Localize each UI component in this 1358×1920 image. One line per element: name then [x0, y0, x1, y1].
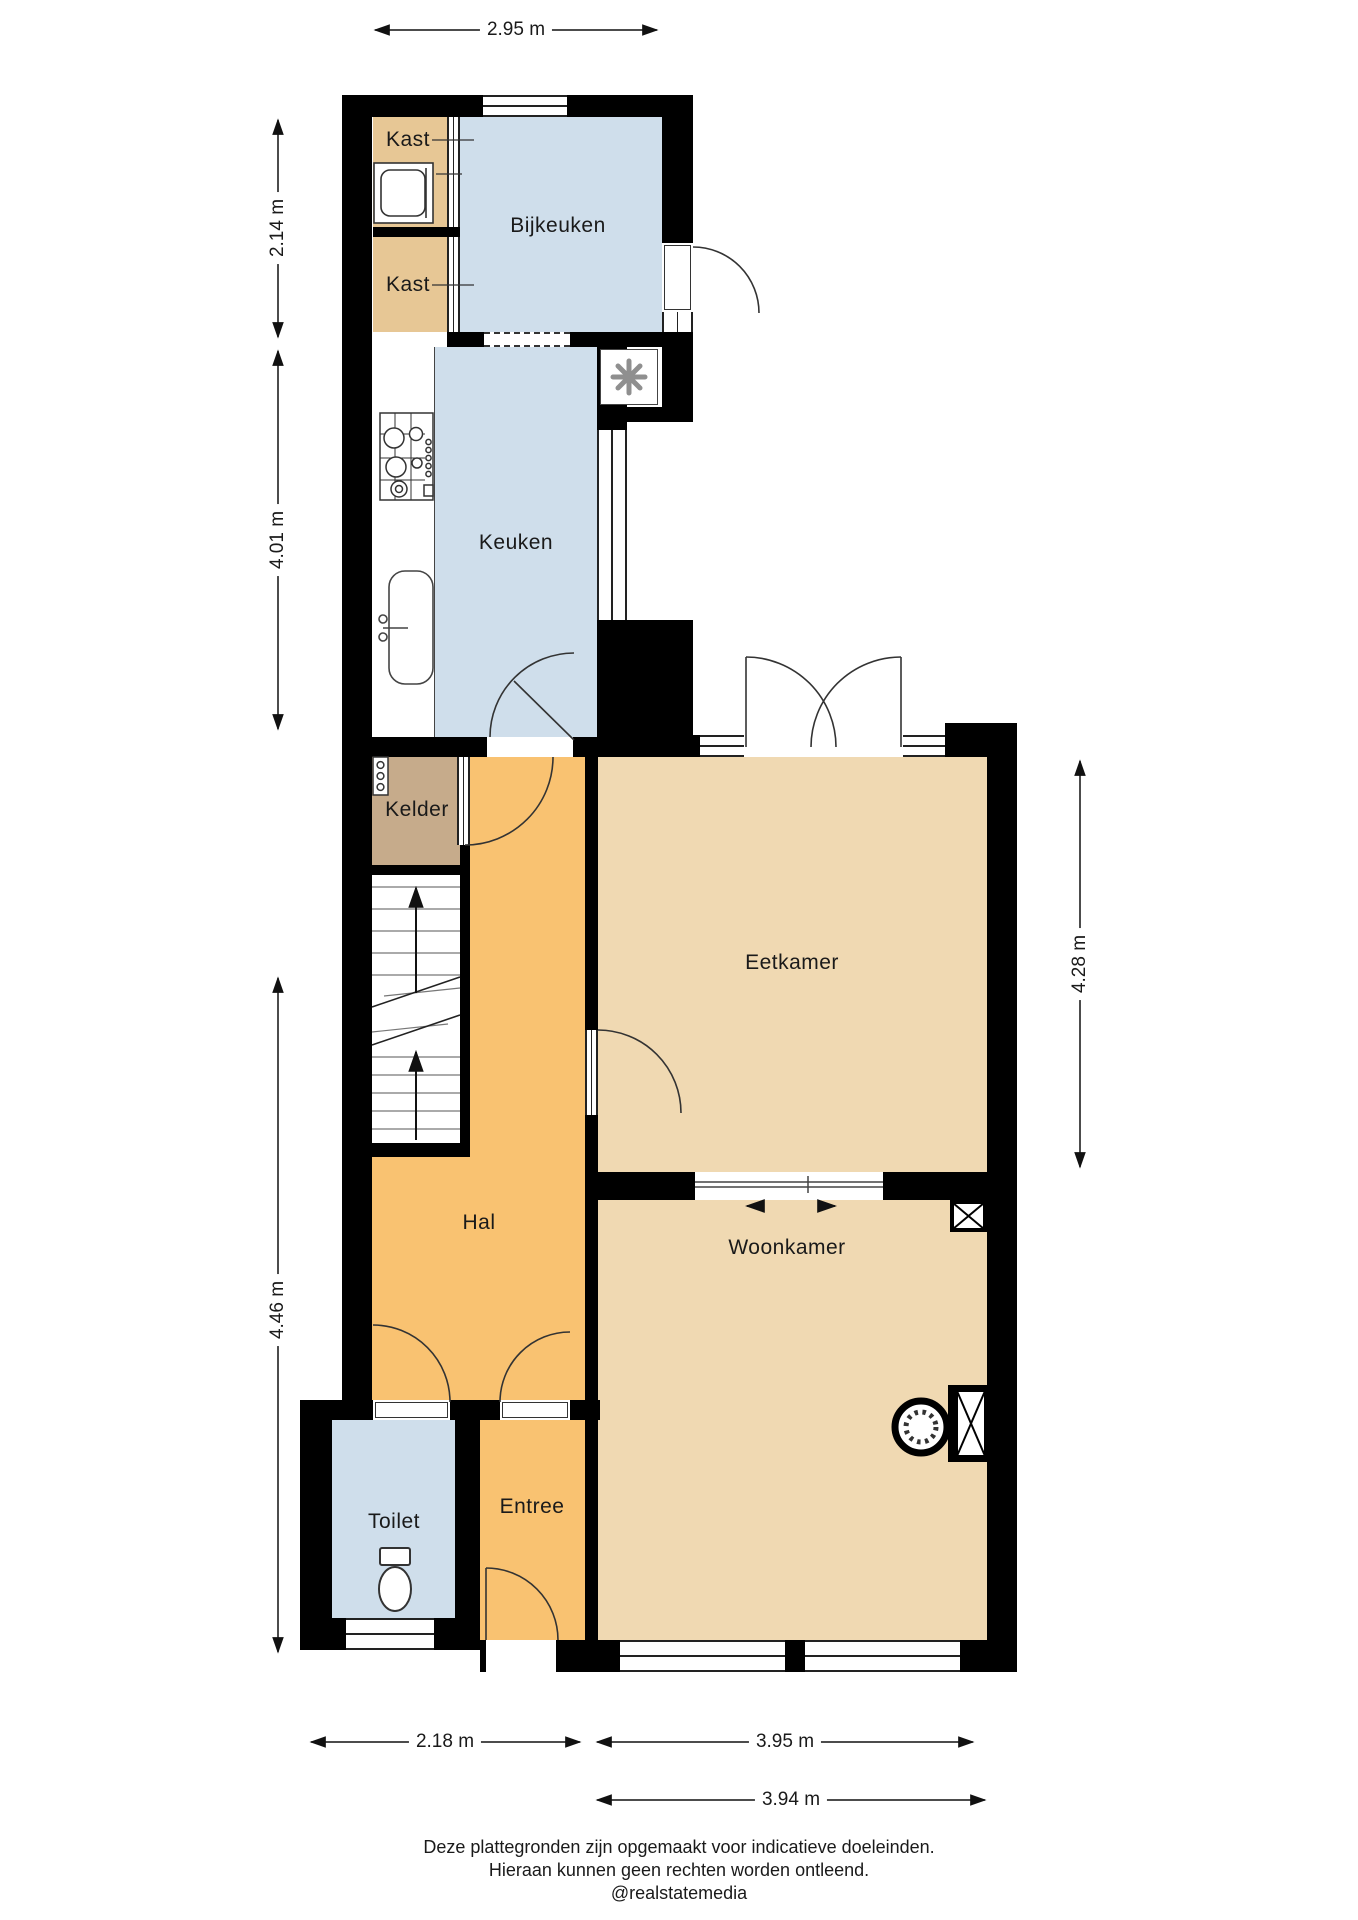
disclaimer-credit: @realstatemedia [0, 1882, 1358, 1905]
disclaimer-line2: Hieraan kunnen geen rechten worden ontle… [0, 1859, 1358, 1882]
floorplan-page: Kast Kast Bijkeuken Keuken Kelder Eetkam… [0, 0, 1358, 1920]
dim-bottom-lower: 3.94 m [755, 1788, 827, 1812]
kast1-label: Kast [386, 128, 430, 152]
dim-left-middle: 4.01 m [266, 504, 290, 576]
dim-left-bottom: 4.46 m [266, 1274, 290, 1346]
door-swing [465, 757, 553, 845]
hal-label: Hal [462, 1211, 495, 1235]
chimney-flue-icon [953, 1203, 984, 1229]
sliding-door-icon [695, 1176, 883, 1193]
keuken-label: Keuken [479, 531, 553, 555]
plan-overlay [0, 0, 1358, 1920]
door-swing [486, 1568, 558, 1640]
door-swing [693, 247, 759, 313]
kelder-label: Kelder [385, 798, 449, 822]
sink-icon [379, 571, 433, 684]
door-swing [373, 1325, 450, 1402]
dim-top: 2.95 m [480, 18, 552, 42]
door-swing [500, 1332, 570, 1402]
wood-stove-icon [895, 1401, 947, 1453]
dim-bottom-left: 2.18 m [409, 1730, 481, 1754]
door-swing [490, 653, 574, 737]
entree-label: Entree [500, 1495, 565, 1519]
door-swing [598, 1030, 681, 1113]
fan-icon [613, 361, 645, 393]
stove-icon [380, 413, 433, 500]
door-leaf [514, 681, 574, 740]
kast2-label: Kast [386, 273, 430, 297]
meter-icon [373, 757, 388, 795]
disclaimer-line1: Deze plattegronden zijn opgemaakt voor i… [0, 1836, 1358, 1859]
dim-bottom-right: 3.95 m [749, 1730, 821, 1754]
toilet-icon [379, 1548, 411, 1611]
disclaimer: Deze plattegronden zijn opgemaakt voor i… [0, 1836, 1358, 1905]
eetkamer-label: Eetkamer [745, 951, 839, 975]
chimney-flue-icon [957, 1391, 985, 1456]
bijkeuken-label: Bijkeuken [510, 214, 606, 238]
dim-right: 4.28 m [1068, 928, 1092, 1000]
dim-left-top: 2.14 m [266, 192, 290, 264]
washing-machine-icon [374, 163, 433, 223]
woonkamer-label: Woonkamer [728, 1236, 845, 1260]
toilet-label: Toilet [368, 1510, 420, 1534]
leader-line [432, 140, 474, 285]
